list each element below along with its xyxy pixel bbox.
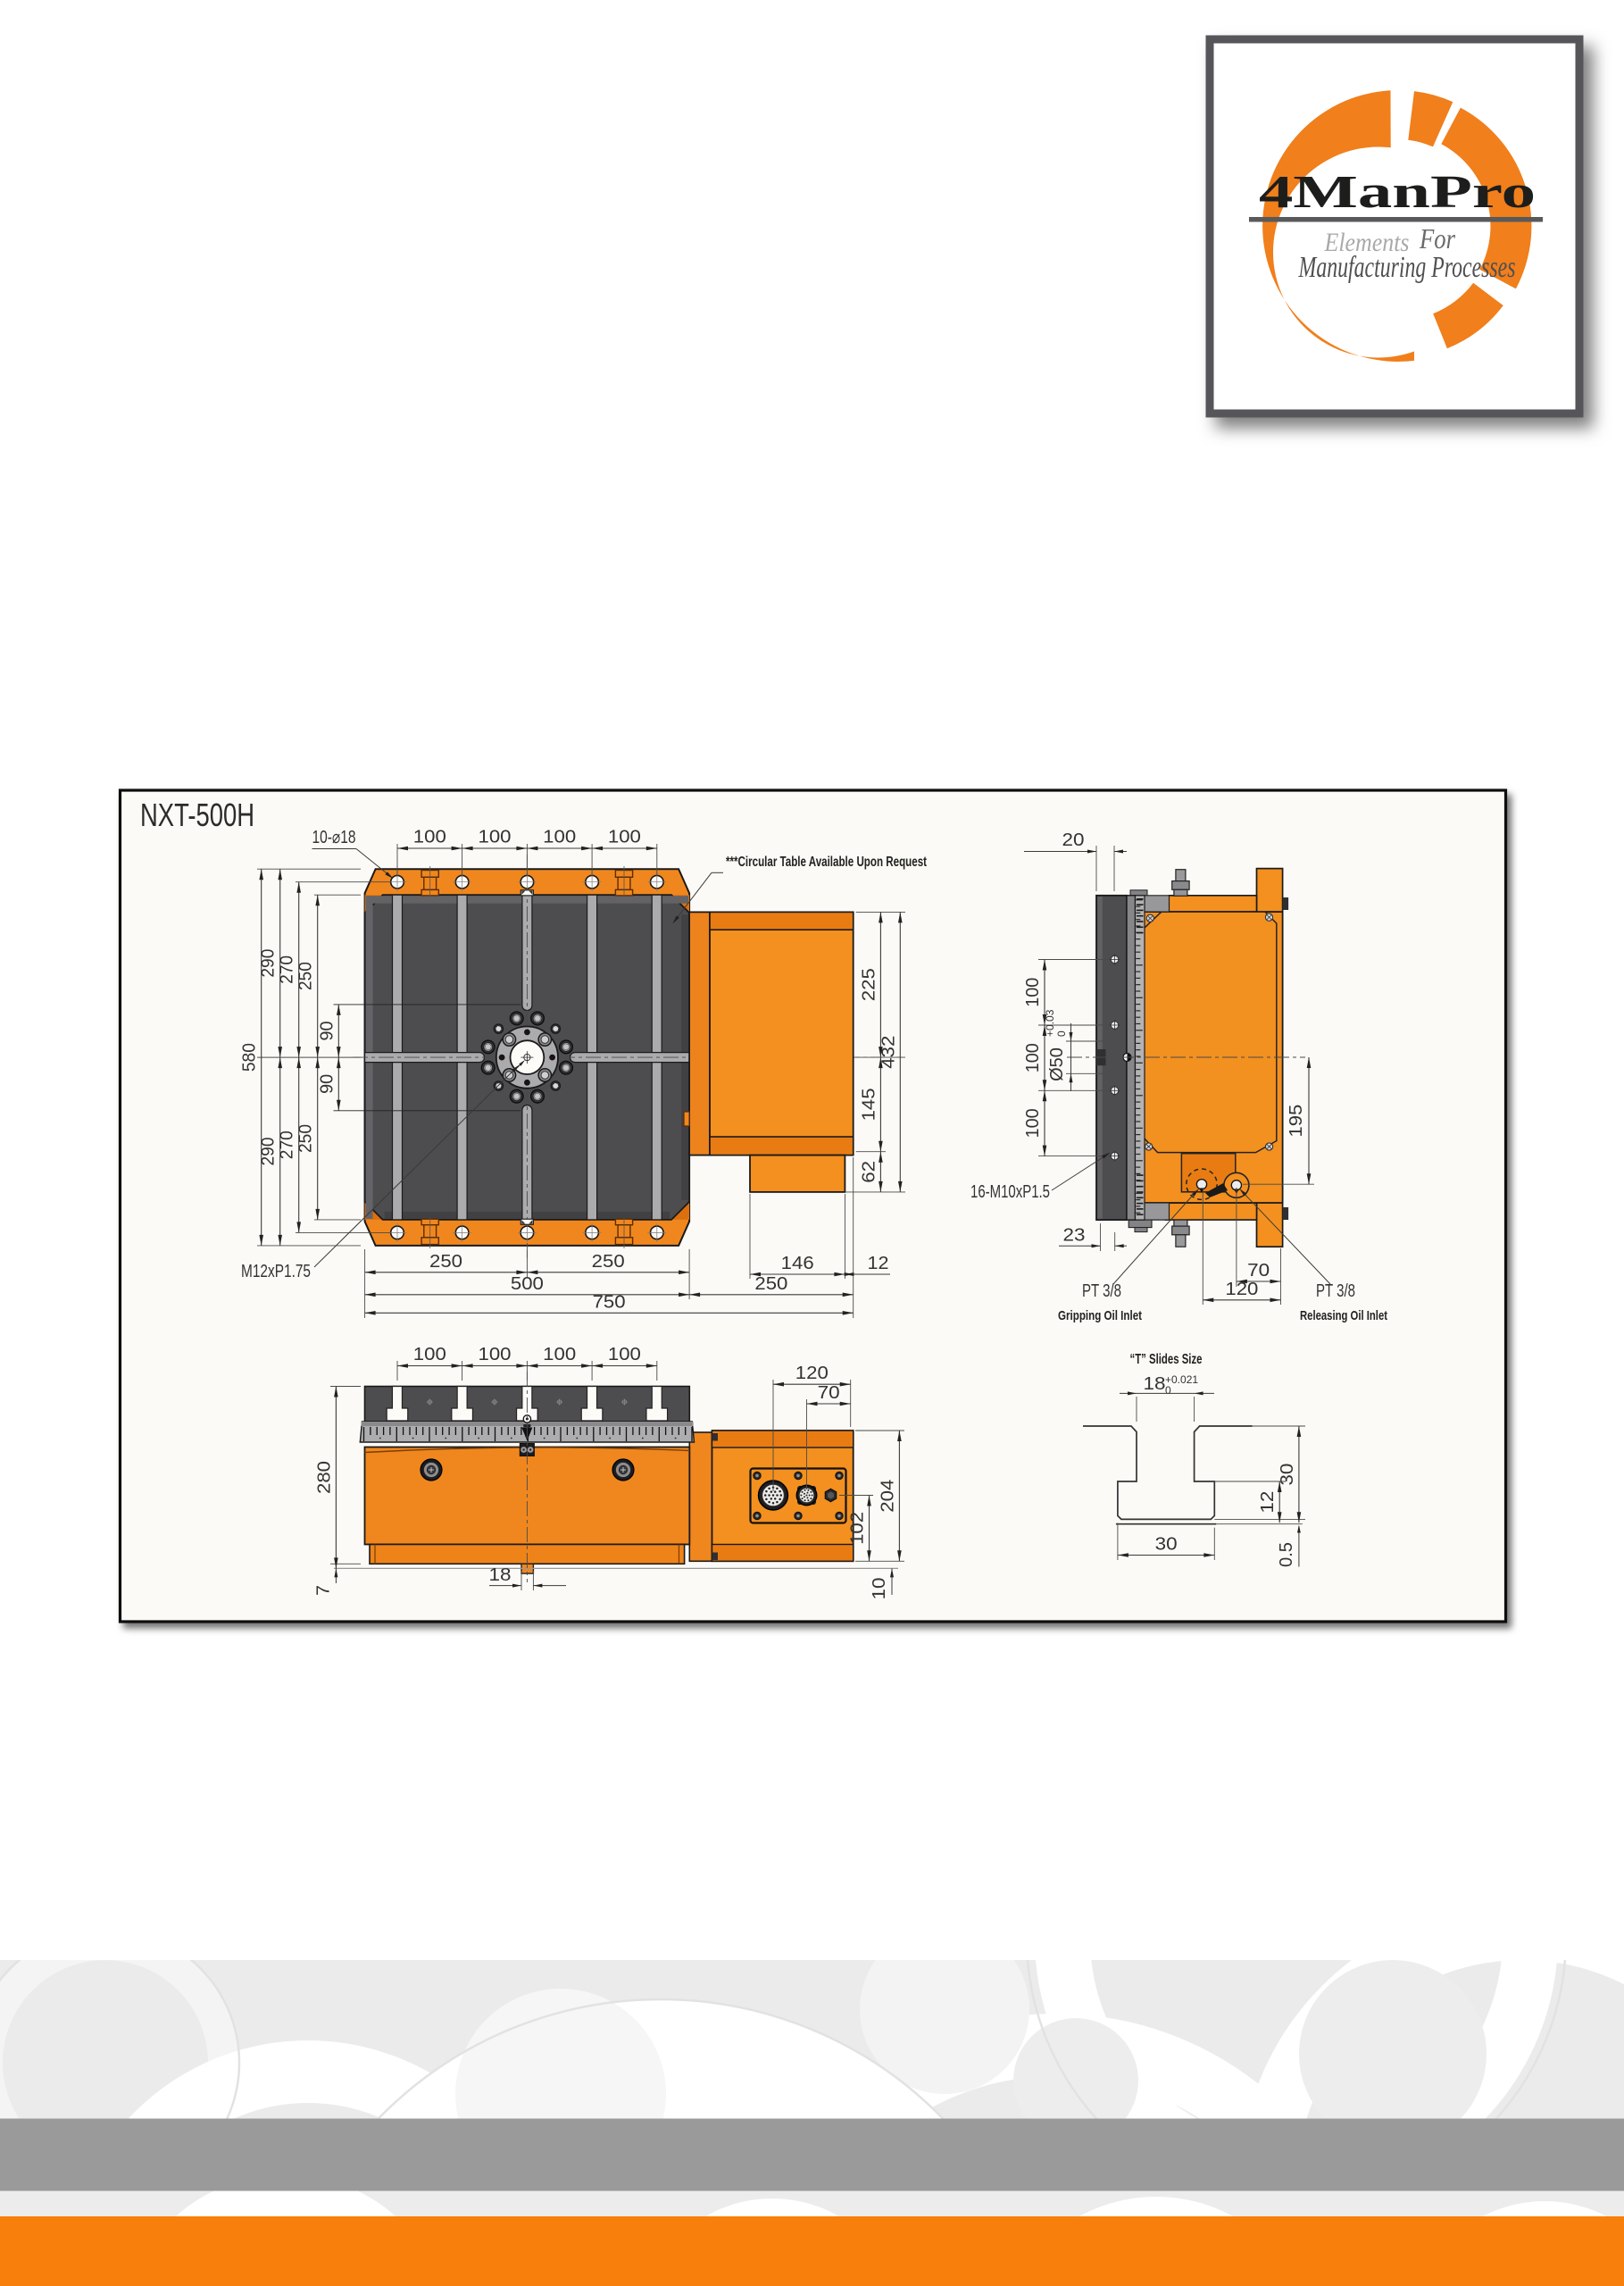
svg-text:145: 145 (859, 1088, 879, 1121)
svg-text:23: 23 (1063, 1226, 1086, 1246)
svg-text:290: 290 (259, 949, 279, 978)
svg-text:Releasing Oil Inlet: Releasing Oil Inlet (1300, 1308, 1387, 1323)
svg-text:100: 100 (413, 828, 446, 847)
svg-text:270: 270 (278, 1130, 297, 1159)
svg-text:100: 100 (543, 828, 576, 847)
svg-text:250: 250 (296, 1124, 316, 1153)
svg-text:750: 750 (593, 1292, 626, 1312)
svg-text:250: 250 (429, 1252, 462, 1272)
svg-text:225: 225 (859, 968, 879, 1001)
svg-text:For: For (1419, 222, 1455, 254)
svg-text:M12xP1.75: M12xP1.75 (241, 1262, 311, 1281)
svg-text:100: 100 (1023, 1043, 1043, 1072)
svg-text:10: 10 (870, 1578, 889, 1600)
svg-text:120: 120 (1225, 1280, 1258, 1299)
svg-text:20: 20 (1062, 830, 1085, 850)
svg-text:280: 280 (314, 1461, 334, 1494)
svg-text:102: 102 (848, 1512, 868, 1545)
svg-text:70: 70 (1247, 1261, 1270, 1281)
svg-text:+0.03: +0.03 (1044, 1009, 1056, 1037)
svg-text:580: 580 (240, 1043, 260, 1072)
svg-text:12: 12 (868, 1254, 889, 1273)
svg-text:30: 30 (1278, 1464, 1297, 1486)
svg-text:500: 500 (511, 1274, 544, 1294)
svg-text:100: 100 (608, 828, 641, 847)
svg-text:204: 204 (878, 1480, 897, 1513)
svg-text:10-⌀18: 10-⌀18 (312, 828, 356, 847)
svg-text:100: 100 (1023, 978, 1043, 1007)
svg-text:7: 7 (313, 1585, 333, 1596)
svg-text:195: 195 (1287, 1105, 1306, 1138)
svg-text:“T” Slides Size: “T” Slides Size (1130, 1352, 1203, 1367)
svg-text:100: 100 (479, 1345, 512, 1364)
svg-text:146: 146 (781, 1254, 814, 1273)
svg-text:0: 0 (1055, 1030, 1068, 1037)
svg-text:Gripping Oil Inlet: Gripping Oil Inlet (1058, 1308, 1142, 1323)
svg-text:432: 432 (879, 1036, 898, 1069)
svg-text:4ManPro: 4ManPro (1259, 167, 1536, 218)
svg-text:270: 270 (278, 955, 297, 984)
svg-text:***Circular Table Available Up: ***Circular Table Available Upon Request (726, 855, 927, 870)
svg-text:62: 62 (859, 1161, 879, 1183)
svg-text:90: 90 (317, 1074, 337, 1094)
svg-text:0: 0 (1165, 1384, 1171, 1397)
svg-text:100: 100 (1023, 1108, 1043, 1138)
svg-text:290: 290 (259, 1138, 279, 1166)
svg-text:PT 3/8: PT 3/8 (1082, 1281, 1121, 1301)
svg-text:100: 100 (413, 1345, 446, 1364)
svg-text:0.5: 0.5 (1277, 1542, 1296, 1567)
svg-text:250: 250 (296, 962, 316, 990)
svg-text:NXT-500H: NXT-500H (140, 797, 254, 833)
svg-text:Manufacturing Processes: Manufacturing Processes (1298, 251, 1516, 284)
svg-text:100: 100 (543, 1345, 576, 1364)
svg-text:120: 120 (795, 1364, 829, 1383)
svg-text:250: 250 (592, 1252, 625, 1272)
svg-text:100: 100 (608, 1345, 641, 1364)
svg-text:18: 18 (489, 1565, 512, 1585)
svg-text:12: 12 (1258, 1491, 1278, 1514)
svg-text:18: 18 (1144, 1374, 1166, 1394)
svg-text:250: 250 (754, 1274, 787, 1294)
svg-text:PT 3/8: PT 3/8 (1316, 1281, 1355, 1301)
svg-text:100: 100 (479, 828, 512, 847)
svg-text:Ø50: Ø50 (1047, 1047, 1067, 1081)
svg-text:30: 30 (1155, 1534, 1178, 1554)
svg-text:70: 70 (818, 1383, 840, 1403)
svg-text:16-M10xP1.5: 16-M10xP1.5 (970, 1182, 1050, 1202)
svg-text:90: 90 (317, 1022, 337, 1041)
